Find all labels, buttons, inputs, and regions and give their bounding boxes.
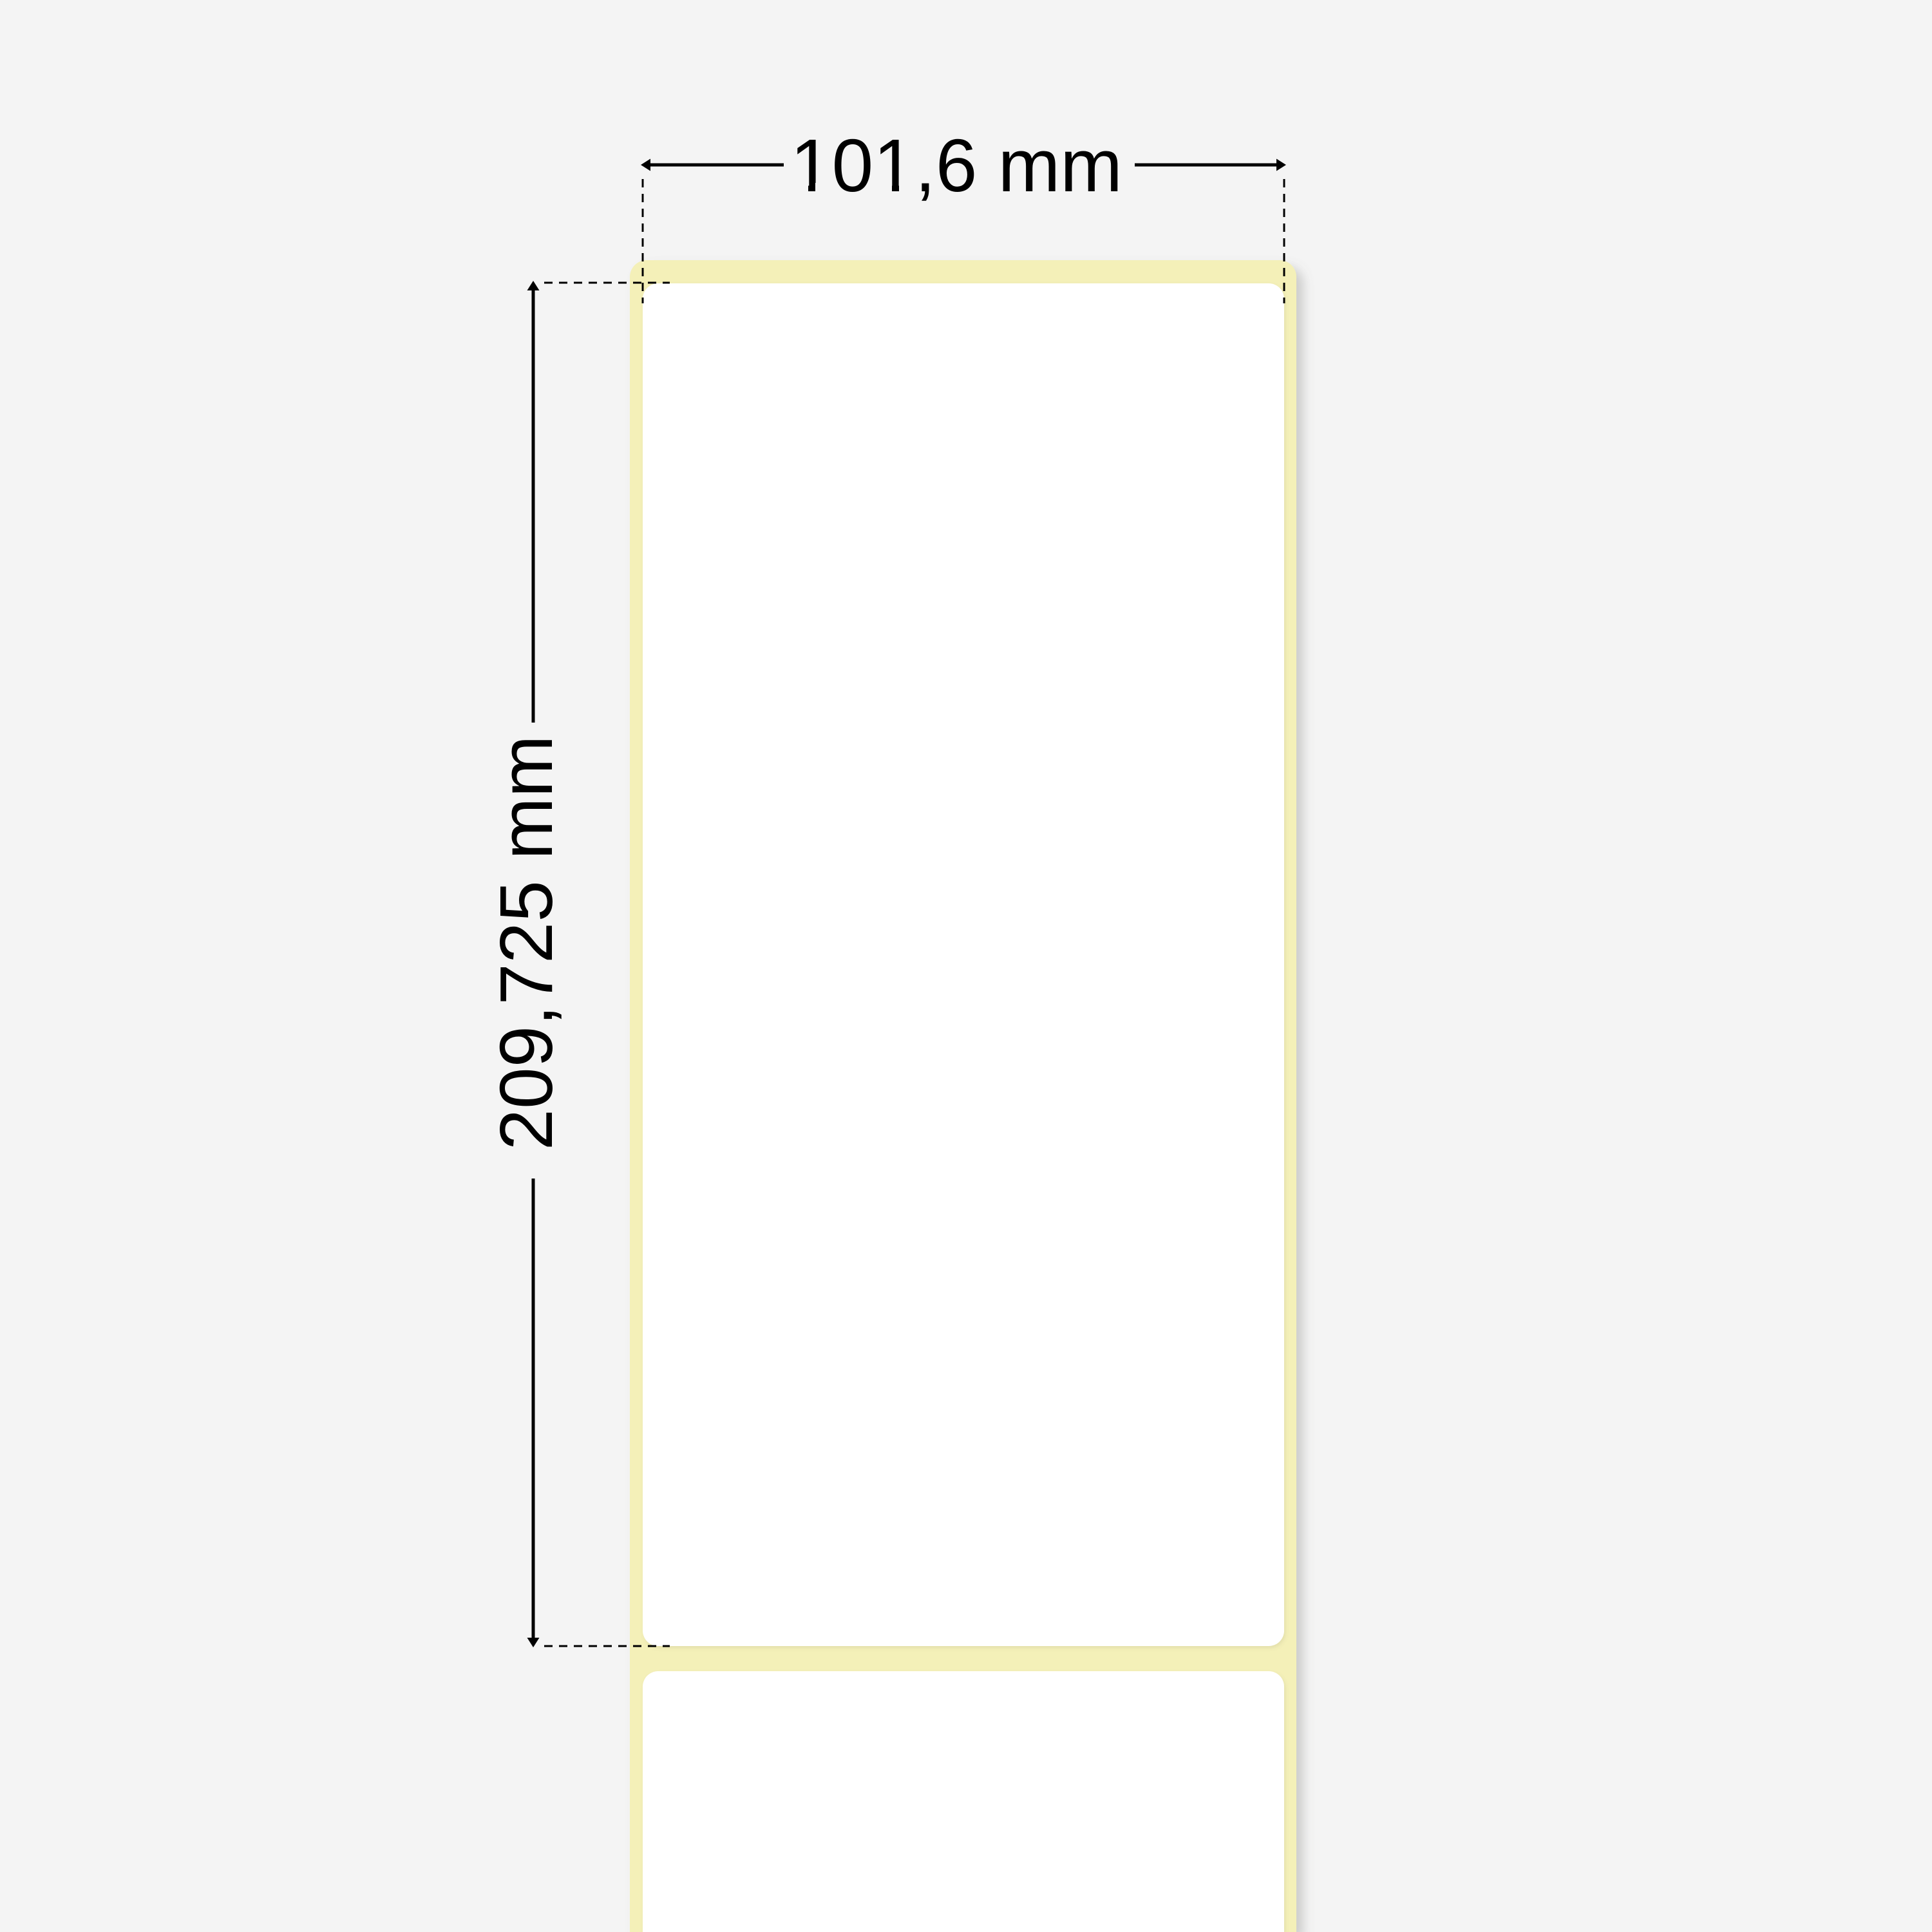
svg-text:101,6 mm: 101,6 mm	[790, 124, 1122, 207]
svg-text:209,725 mm: 209,725 mm	[484, 735, 568, 1151]
